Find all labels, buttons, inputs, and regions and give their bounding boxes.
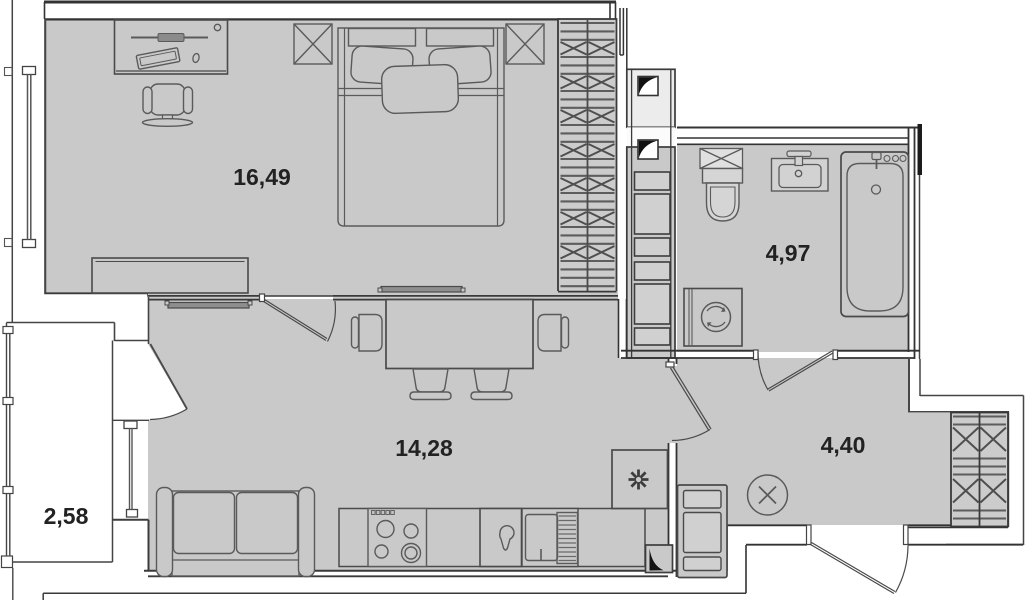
- svg-text:16,49: 16,49: [233, 164, 291, 190]
- svg-text:4,40: 4,40: [821, 432, 866, 458]
- svg-text:4,97: 4,97: [766, 240, 811, 266]
- svg-text:2,58: 2,58: [44, 503, 89, 529]
- svg-text:14,28: 14,28: [395, 435, 453, 461]
